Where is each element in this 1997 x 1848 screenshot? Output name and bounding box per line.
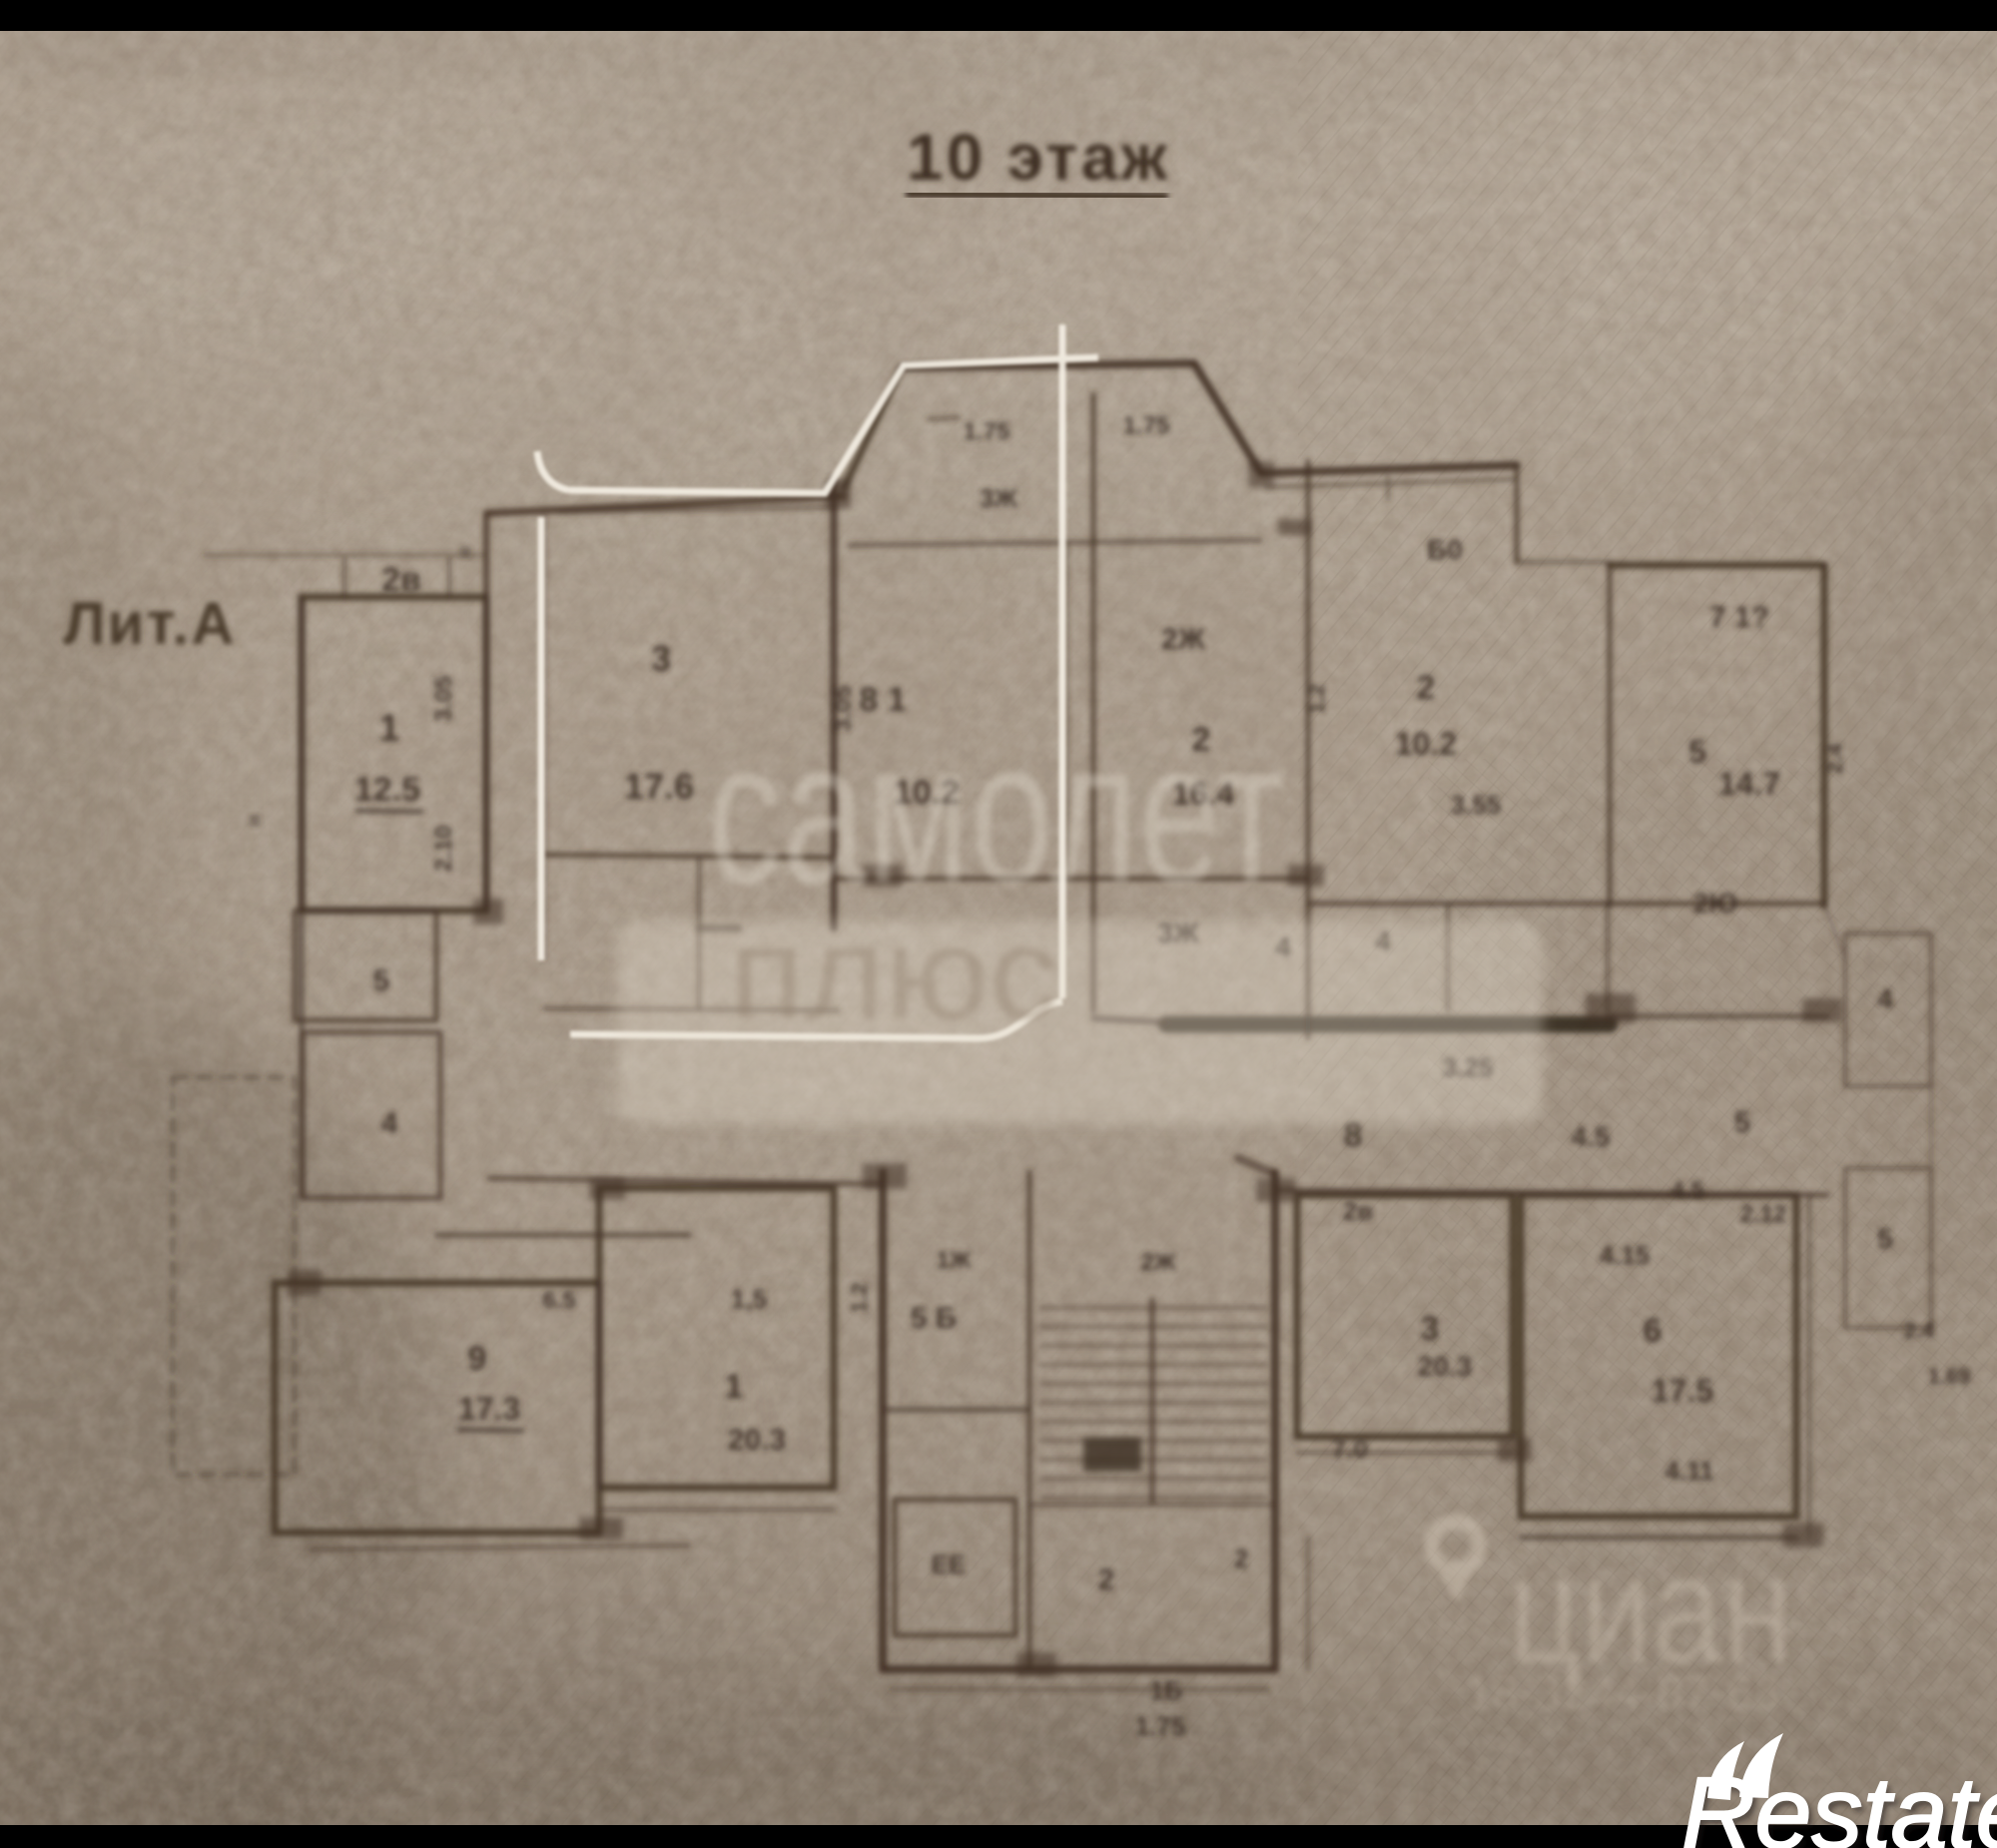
svg-text:2Ю: 2Ю bbox=[1693, 888, 1737, 919]
svg-text:4: 4 bbox=[381, 1107, 398, 1140]
svg-text:1.2: 1.2 bbox=[847, 1283, 872, 1314]
svg-text:3: 3 bbox=[1421, 1310, 1440, 1348]
svg-text:2Ж: 2Ж bbox=[1161, 623, 1206, 656]
svg-text:2в: 2в bbox=[381, 561, 421, 599]
svg-text:3Ж: 3Ж bbox=[980, 483, 1017, 513]
svg-text:4.5: 4.5 bbox=[1572, 1121, 1611, 1152]
svg-text:2: 2 bbox=[1417, 669, 1436, 707]
svg-text:1: 1 bbox=[378, 708, 399, 750]
svg-text:самолет: самолет bbox=[707, 698, 1286, 926]
svg-text:4.5: 4.5 bbox=[1670, 1177, 1703, 1204]
svg-text:1,5: 1,5 bbox=[731, 1284, 767, 1314]
svg-text:9: 9 bbox=[468, 1340, 487, 1378]
svg-text:1: 1 bbox=[725, 1368, 744, 1406]
svg-text:17.5: 17.5 bbox=[1652, 1373, 1713, 1409]
svg-text:17.6: 17.6 bbox=[624, 766, 694, 807]
svg-text:2Ж: 2Ж bbox=[1140, 1249, 1175, 1276]
svg-text:2: 2 bbox=[1234, 1543, 1248, 1573]
svg-text:3.55: 3.55 bbox=[1451, 790, 1502, 820]
svg-text:2в: 2в bbox=[1343, 1196, 1373, 1226]
svg-text:6.5: 6.5 bbox=[542, 1287, 575, 1314]
svg-text:1Б: 1Б bbox=[1149, 1675, 1182, 1705]
svg-text:плюс: плюс bbox=[729, 900, 1058, 1046]
svg-text:7 1?: 7 1? bbox=[1709, 601, 1769, 634]
svg-text:=: = bbox=[249, 809, 262, 834]
svg-text:5: 5 bbox=[1688, 734, 1706, 770]
svg-text:Restate: Restate bbox=[1681, 1756, 1997, 1848]
svg-text:5 Б: 5 Б bbox=[911, 1302, 958, 1335]
svg-text:17.3: 17.3 bbox=[458, 1391, 520, 1427]
svg-text:14.7: 14.7 bbox=[1718, 766, 1780, 802]
svg-text:3: 3 bbox=[651, 638, 671, 679]
svg-text:2.4: 2.4 bbox=[1904, 1318, 1935, 1343]
svg-text:1.75: 1.75 bbox=[964, 418, 1010, 445]
svg-text:2.4: 2.4 bbox=[1822, 743, 1847, 774]
svg-text:6: 6 bbox=[1644, 1312, 1663, 1350]
svg-text:5: 5 bbox=[373, 964, 390, 997]
svg-text:2.10: 2.10 bbox=[430, 826, 457, 873]
svg-text:4.11: 4.11 bbox=[1664, 1456, 1713, 1486]
svg-text:20.3: 20.3 bbox=[728, 1424, 786, 1457]
svg-text:2: 2 bbox=[1098, 1563, 1115, 1596]
svg-text:1.2: 1.2 bbox=[1304, 684, 1329, 715]
svg-text:10.2: 10.2 bbox=[1395, 726, 1457, 762]
svg-text:10 этаж: 10 этаж bbox=[907, 120, 1170, 194]
svg-text:20.3: 20.3 bbox=[1418, 1351, 1473, 1382]
svg-text:≡: ≡ bbox=[459, 539, 472, 564]
svg-text:4: 4 bbox=[1877, 983, 1893, 1014]
svg-text:7.0: 7.0 bbox=[1332, 1434, 1368, 1464]
svg-text:18-3244-87-63: 18-3244-87-63 bbox=[1466, 1667, 1780, 1720]
svg-text:12.5: 12.5 bbox=[354, 771, 420, 809]
svg-text:ЕЕ: ЕЕ bbox=[932, 1549, 967, 1579]
svg-text:1.69: 1.69 bbox=[1928, 1364, 1971, 1389]
svg-text:1.75: 1.75 bbox=[1135, 1711, 1186, 1741]
svg-text:3.05: 3.05 bbox=[430, 676, 457, 723]
svg-text:Б0: Б0 bbox=[1427, 534, 1463, 565]
svg-text:5: 5 bbox=[1734, 1106, 1751, 1139]
svg-text:4.15: 4.15 bbox=[1600, 1240, 1651, 1270]
svg-text:1.75: 1.75 bbox=[1123, 412, 1170, 439]
svg-text:2.12: 2.12 bbox=[1740, 1201, 1787, 1228]
svg-text:1Ж: 1Ж bbox=[936, 1247, 971, 1274]
svg-text:Лит.А: Лит.А bbox=[63, 590, 236, 657]
svg-text:5: 5 bbox=[1877, 1223, 1893, 1254]
